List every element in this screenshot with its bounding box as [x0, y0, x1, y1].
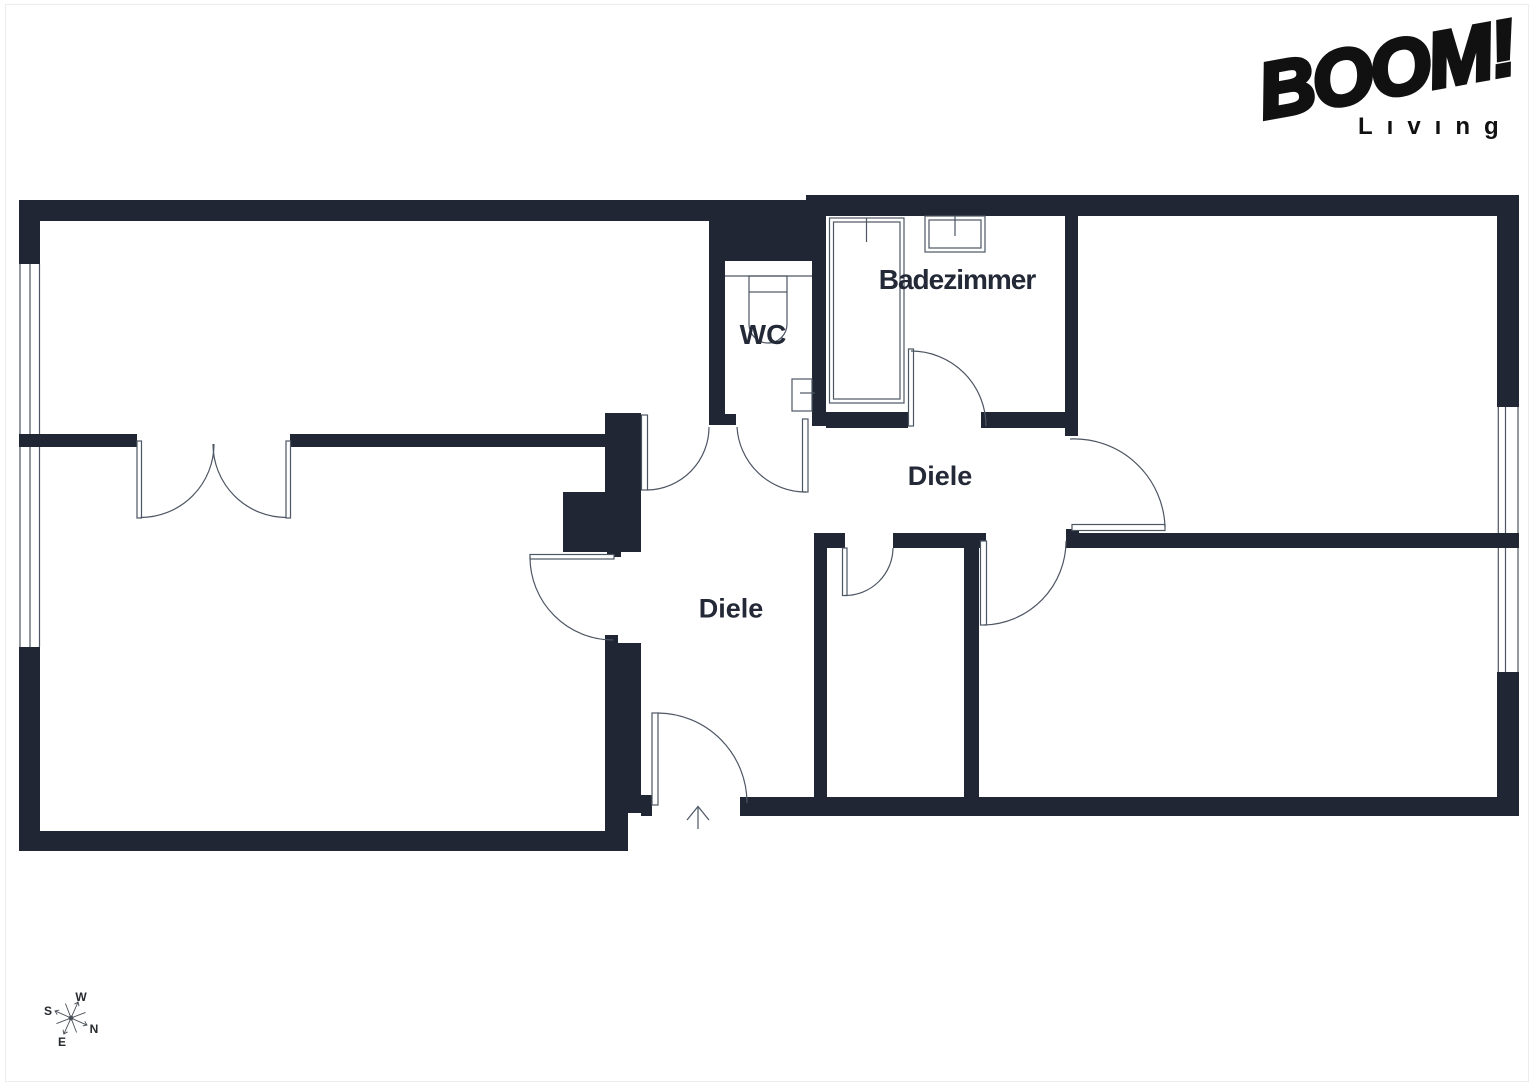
svg-text:Diele: Diele: [908, 461, 973, 491]
svg-text:N: N: [90, 1022, 99, 1036]
svg-text:S: S: [44, 1004, 52, 1018]
svg-text:Badezimmer: Badezimmer: [879, 264, 1037, 295]
svg-text:Diele: Diele: [699, 594, 764, 624]
svg-text:WC: WC: [740, 319, 787, 350]
svg-text:E: E: [58, 1035, 66, 1049]
svg-text:W: W: [75, 990, 87, 1004]
